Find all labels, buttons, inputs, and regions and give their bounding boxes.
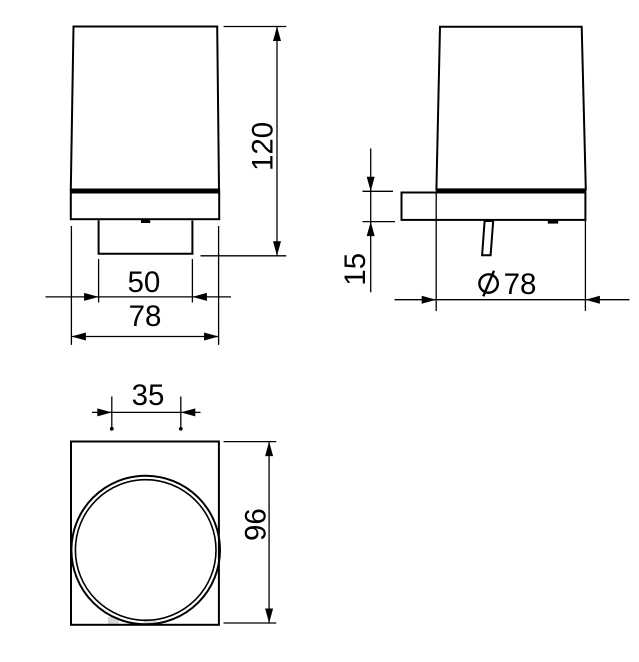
svg-text:50: 50 [127,266,160,299]
svg-text:96: 96 [239,508,272,541]
svg-text:35: 35 [132,379,165,412]
svg-text:78: 78 [129,300,162,333]
svg-text:120: 120 [246,122,279,171]
svg-text:15: 15 [339,253,372,286]
svg-text:78: 78 [504,268,537,301]
